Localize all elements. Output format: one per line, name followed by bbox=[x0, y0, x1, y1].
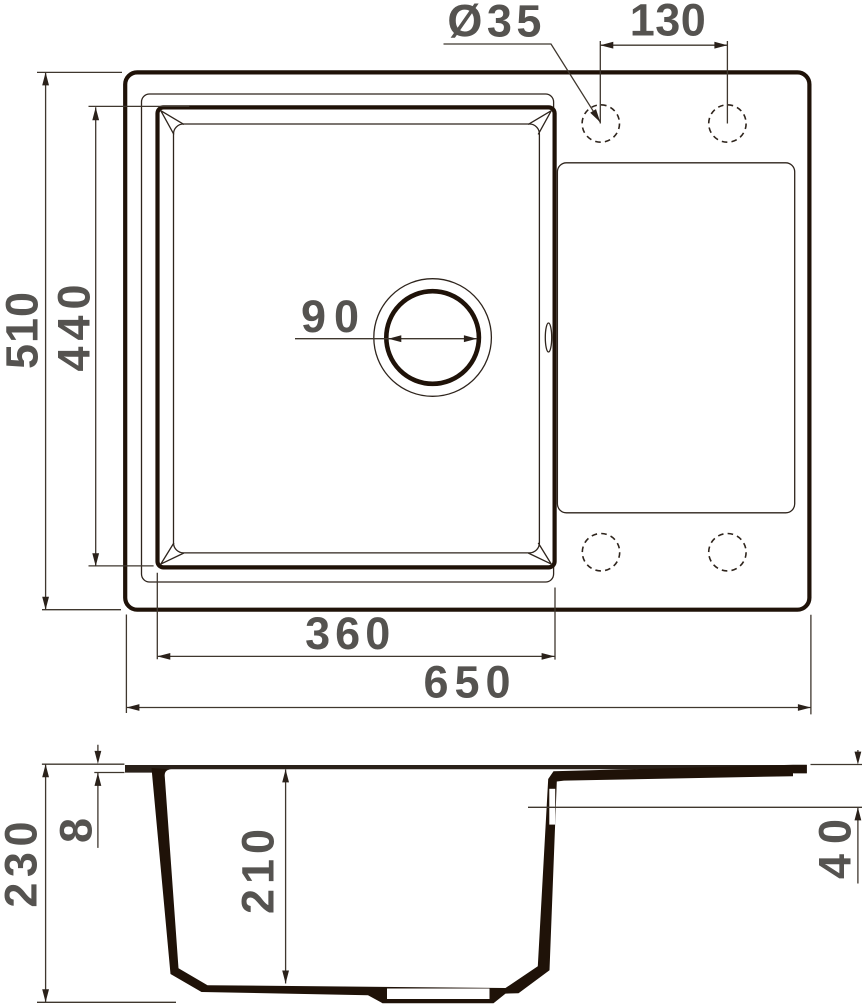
svg-text:360: 360 bbox=[305, 608, 395, 659]
svg-text:230: 230 bbox=[0, 816, 47, 908]
svg-text:8: 8 bbox=[51, 818, 102, 843]
svg-text:650: 650 bbox=[423, 657, 516, 708]
svg-text:510: 510 bbox=[0, 291, 48, 369]
svg-text:210: 210 bbox=[233, 824, 284, 914]
svg-text:40: 40 bbox=[810, 809, 861, 879]
svg-text:90: 90 bbox=[301, 291, 367, 342]
svg-text:Ø35: Ø35 bbox=[447, 0, 546, 47]
svg-text:130: 130 bbox=[630, 0, 707, 45]
svg-text:440: 440 bbox=[49, 278, 100, 371]
